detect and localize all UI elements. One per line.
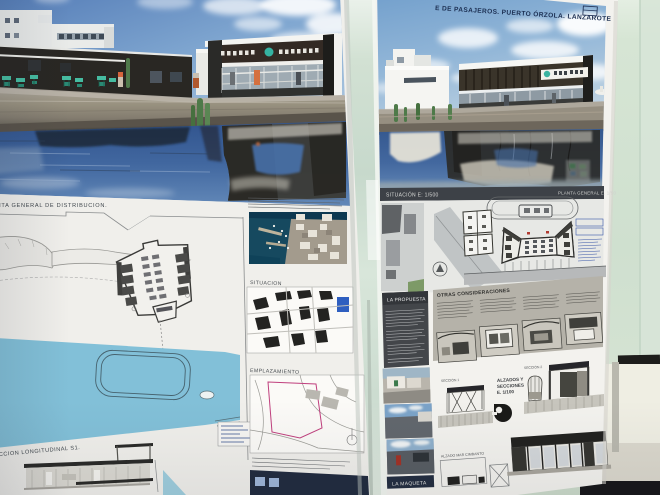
svg-text:PLANTA GENERAL E. 1/50: PLANTA GENERAL E. 1/50 xyxy=(558,191,616,196)
svg-text:SITUACION: SITUACION xyxy=(250,280,282,287)
svg-text:SITUACIÓN E: 1/500: SITUACIÓN E: 1/500 xyxy=(386,192,439,199)
svg-text:E. 1/100: E. 1/100 xyxy=(497,389,515,395)
svg-text:SECCIÓN 2: SECCIÓN 2 xyxy=(524,364,543,370)
svg-text:LA PROPUESTA: LA PROPUESTA xyxy=(387,296,426,303)
svg-text:SECCIÓN 1: SECCIÓN 1 xyxy=(441,377,460,383)
